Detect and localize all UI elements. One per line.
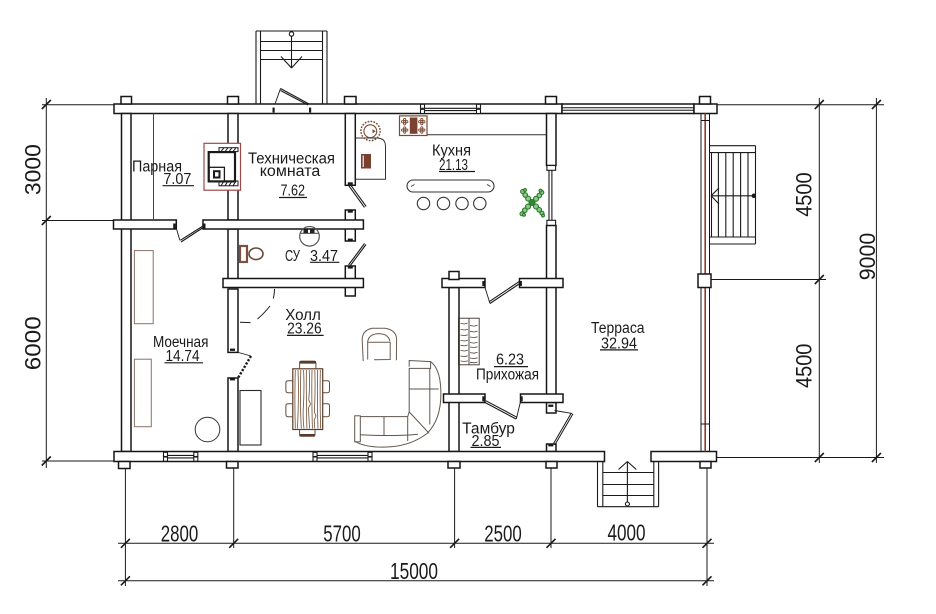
svg-text:4500: 4500 [792,172,817,216]
svg-text:15000: 15000 [390,558,438,584]
svg-text:6000: 6000 [21,316,46,370]
svg-text:2800: 2800 [161,520,199,546]
svg-text:4500: 4500 [792,344,817,388]
svg-text:Терраса: Терраса [591,320,645,337]
svg-text:5700: 5700 [323,520,361,546]
svg-text:3000: 3000 [21,144,46,195]
svg-text:2500: 2500 [484,520,522,546]
svg-text:Прихожая: Прихожая [476,366,539,383]
svg-text:4000: 4000 [608,520,646,546]
svg-text:комната: комната [260,163,321,180]
svg-text:23.26: 23.26 [287,320,322,337]
svg-text:9000: 9000 [855,233,880,281]
svg-text:СУ: СУ [285,248,300,265]
